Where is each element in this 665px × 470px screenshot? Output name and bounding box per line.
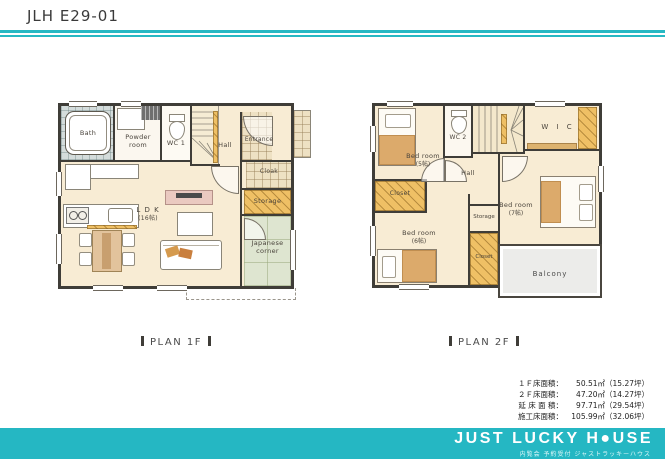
room-label-ldk-size: (16帖) [127,215,169,222]
floorplan-1f: Bath Powder room WC 1 Hall Entrance Cloa… [58,103,294,289]
wall [445,156,473,158]
window [56,172,62,196]
caption-bar [208,336,211,346]
area-row-2f: ２Ｆ床面積： 47.20㎡（14.27坪） [505,389,649,400]
caption-bar [516,336,519,346]
window [121,101,141,107]
terrace-outline [186,288,296,300]
caption-plan-2f-text: PLAN 2F [458,337,510,348]
room-label-hall-2f: Hall [453,170,483,178]
wall [113,106,115,160]
stairs-icon [473,106,523,152]
window [387,101,413,107]
tv-icon [176,193,202,198]
room-label-wc1: WC 1 [160,140,192,148]
room-label-bed7-text: Bed room [499,201,533,209]
dining-table [92,230,122,272]
room-label-powder: Powder room [119,134,157,150]
header-rule-bottom [0,35,665,37]
area-row-1f: １Ｆ床面積： 50.51㎡（15.27坪） [505,378,649,389]
coffee-table [177,212,213,236]
washing-machine [141,106,160,120]
window [535,101,565,107]
window [93,285,123,291]
bed-6 [377,249,437,283]
window [157,285,187,291]
stove [66,207,89,224]
room-label-japanese: Japanese corner [244,240,291,256]
window [370,126,376,152]
wall [375,179,427,181]
area-value: 47.20㎡（14.27坪） [563,389,649,400]
area-value: 97.71㎡（29.54坪） [563,400,649,411]
area-row-total: 延 床 面 積： 97.71㎡（29.54坪） [505,400,649,411]
wall [375,211,427,213]
room-label-ldk: L D K [127,206,169,214]
wall [468,194,470,285]
header-rule-top [0,30,665,33]
room-label-bed6: Bed room (6帖) [395,222,443,253]
bed-7 [540,176,596,228]
caption-plan-1f-text: PLAN 1F [150,337,202,348]
stair-rail-line [218,106,219,164]
room-label-wic: W I C [533,123,583,131]
door-arc-bed7 [502,156,528,182]
chair [79,233,92,247]
chair [122,233,135,247]
balcony: Balcony [498,244,602,298]
wall [471,106,473,156]
storage-cabinet [65,164,91,190]
room-label-bed5: Bed room (5帖) [403,145,443,176]
wall [242,160,291,162]
table-runner [102,233,111,269]
wall [525,149,599,151]
caption-plan-2f: PLAN 2F [372,336,596,348]
entrance-porch [294,110,311,158]
room-label-bed7: Bed room (7帖) [493,194,539,225]
room-label-bed6-size: (6帖) [395,238,443,245]
burner [78,211,87,220]
room-label-bed6-text: Bed room [402,229,436,237]
pillow [382,256,396,278]
wall [242,214,291,216]
cushion [178,248,193,260]
pillow [579,184,593,201]
window [370,226,376,256]
window [69,101,97,107]
area-label: 延 床 面 積： [505,400,563,411]
pillow [579,204,593,221]
room-label-bed5-size: (5帖) [403,161,443,168]
caption-bar [141,336,144,346]
pillow [385,114,411,128]
area-label: ２Ｆ床面積： [505,389,563,400]
caption-bar [449,336,452,346]
room-label-balcony: Balcony [500,270,600,278]
wall [190,106,192,164]
brand-logo: JUST LUCKY H●USE [454,430,653,448]
room-label-bed7-size: (7帖) [493,210,539,217]
room-stairs-2f [473,106,523,152]
window [399,284,429,290]
room-label-bath: Bath [73,130,103,138]
area-row-construction: 施工床面積： 105.99㎡（32.06坪） [505,411,649,422]
area-label: 施工床面積： [505,411,563,422]
blanket [541,181,561,223]
footer-tagline: 内覧会 予約受付 ジャストラッキーハウス [520,449,651,458]
window [598,166,604,192]
window [56,234,62,264]
area-label: １Ｆ床面積： [505,378,563,389]
wall [242,188,291,190]
tv-board [165,190,213,205]
cabinet-counter [89,164,139,179]
caption-plan-1f: PLAN 1F [58,336,294,348]
room-label-cloak: Cloak [247,168,291,175]
wall [470,231,500,233]
room-label-closet-left: Closet [375,190,425,197]
blanket [402,250,436,282]
wall [160,106,162,160]
room-label-wc2: WC 2 [443,134,473,141]
door-arc [211,166,239,194]
room-label-bed5-text: Bed room [406,152,440,160]
page: JLH E29-01 [0,0,665,470]
sofa [160,240,222,270]
wall [523,106,525,152]
room-label-storage-1f: Storage [244,198,291,206]
room-label-closet-center: Closet [470,254,498,261]
room-label-entrance: Entrance [233,137,285,144]
chair [122,252,135,266]
wall [425,181,427,211]
area-value: 50.51㎡（15.27坪） [563,378,649,389]
floor-area-table: １Ｆ床面積： 50.51㎡（15.27坪） ２Ｆ床面積： 47.20㎡（14.2… [505,378,649,422]
kitchen-cabinet-edge [87,225,137,229]
page-title: JLH E29-01 [27,7,119,25]
chair [79,252,92,266]
stair-handrail [501,114,507,144]
burner [69,211,78,220]
area-value: 105.99㎡（32.06坪） [563,411,649,422]
wall [61,160,192,162]
